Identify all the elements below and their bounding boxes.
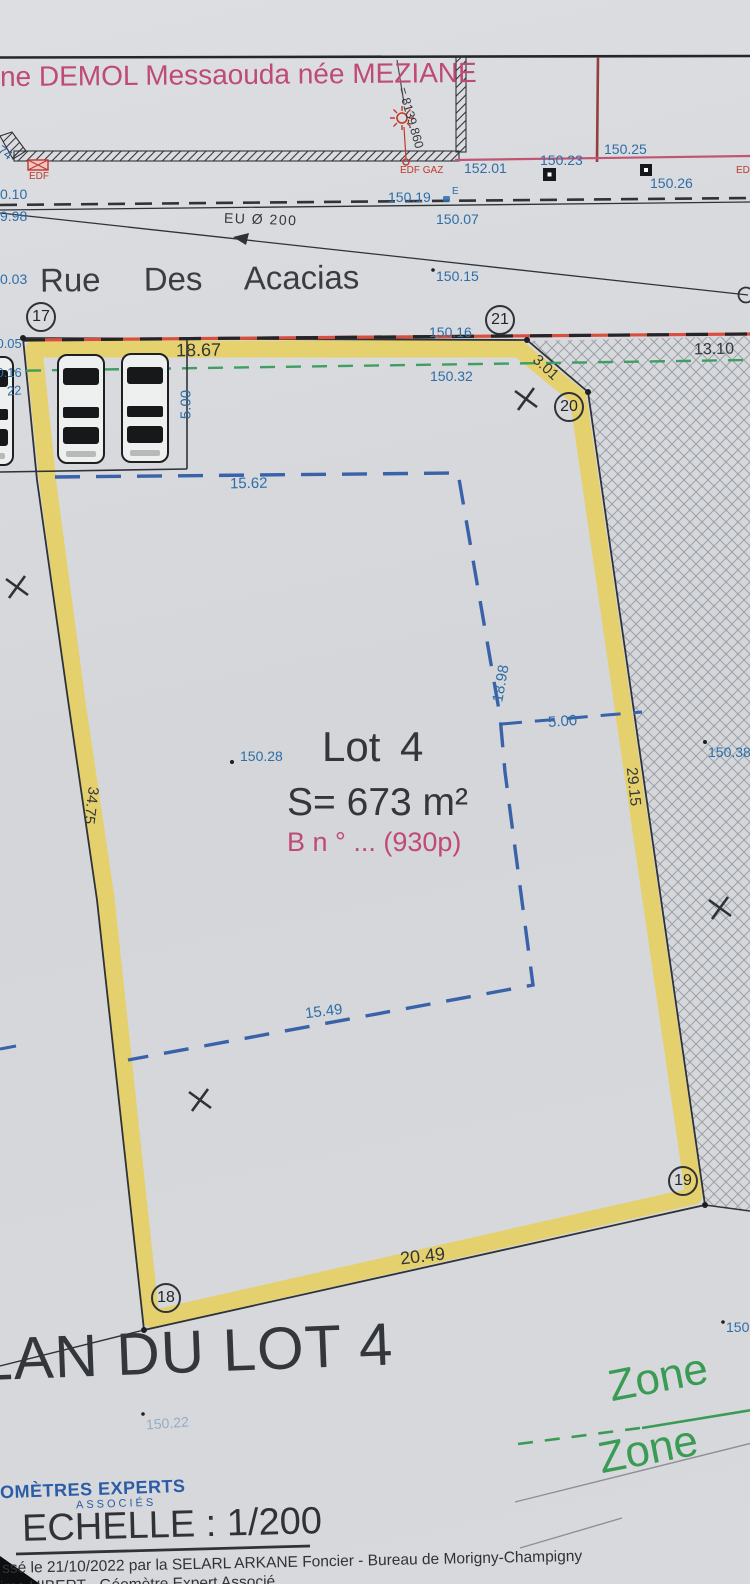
edf-gaz-label: EDF GAZ [400,166,443,176]
car-icon [58,355,104,463]
elevation-150-19: 150.19 [388,190,431,204]
elevation-150-22-faint: 150.22 [146,1415,190,1432]
dim-setback-top-label: 15.62 [230,476,268,492]
lot-parcel-ref-label: B n ° ... (930p) [287,829,461,856]
vertex-21: 21 [485,305,515,335]
lot-name-label: Lot 4 [322,726,423,768]
vertex-21-number: 21 [491,311,509,329]
elevation-150-16: 150.16 [429,325,472,339]
elevation-22-left: 22 [6,383,22,397]
elevation-150-16-left: 150.16 [0,366,22,379]
elevation-0-03: 0.03 [0,272,27,286]
car-icon [122,354,168,462]
elevation-150-26: 150.26 [650,176,693,190]
elevation-0-10: 0.10 [0,187,27,201]
vertex-17: 17 [26,302,56,332]
vertex-18-number: 18 [157,1289,175,1307]
elevation-150-right: 150 [726,1320,749,1334]
survey-plan-page: ne DEMOL Messaouda née MEZIANE = 8139.86… [0,0,750,1584]
elevation-150-38: 150.38 [708,745,750,759]
elevation-150-05-left: 150.05 [0,337,22,350]
vertex-20-number: 20 [560,398,578,416]
setback-lines [0,473,642,1060]
parcel-division-lines [455,57,750,162]
elevation-150-07: 150.07 [436,212,479,226]
dim-setback-gap-label: 5.00 [548,713,578,730]
vertex-17-number: 17 [32,308,50,326]
sewer-pipe-label: EU Ø 200 [224,211,298,228]
vertex-20: 20 [554,392,584,422]
elevation-150-28: 150.28 [240,749,283,763]
elevation-150-23: 150.23 [540,153,583,167]
e-mark-label: E [452,187,459,197]
dim-strip-label: 13.10 [694,342,734,359]
elevation-150-25: 150.25 [604,142,647,156]
dim-parking-depth-label: 5.00 [179,382,194,428]
vertex-19-number: 19 [674,1172,692,1190]
edf-left-label: EDF [29,172,49,182]
edf-right-label: EDF [736,166,750,176]
elevation-9-98: 9.98 [0,209,27,223]
street-name-label: Rue Des Acacias [40,260,360,296]
dim-right-label: 29.15 [623,763,643,810]
elevation-152-01: 152.01 [464,161,507,175]
vertex-18: 18 [151,1283,181,1313]
lot-area-label: S= 673 m² [287,783,468,822]
elevation-150-32: 150.32 [430,369,473,383]
dim-top-label: 18.67 [176,341,221,360]
dim-bottom-label: 20.49 [399,1245,446,1268]
elevation-150-15: 150.15 [436,269,479,283]
edf-box-icon [28,160,48,170]
vertex-19: 19 [668,1166,698,1196]
dim-setback-bottom-label: 15.49 [304,1002,343,1021]
scale-label: ECHELLE : 1/200 [22,1502,323,1548]
